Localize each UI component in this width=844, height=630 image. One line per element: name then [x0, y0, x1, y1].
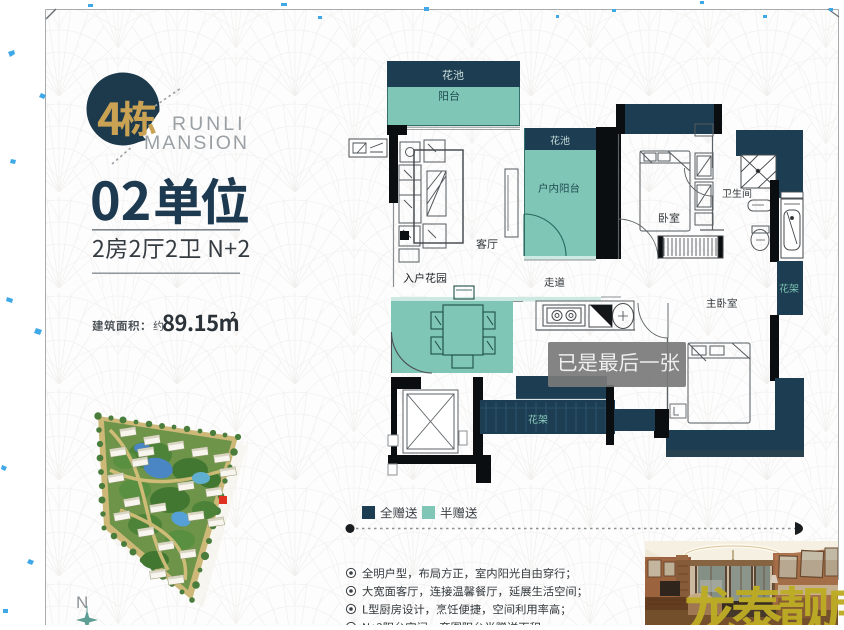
svg-text:N: N [76, 593, 88, 612]
svg-text:MANSION: MANSION [144, 132, 249, 154]
